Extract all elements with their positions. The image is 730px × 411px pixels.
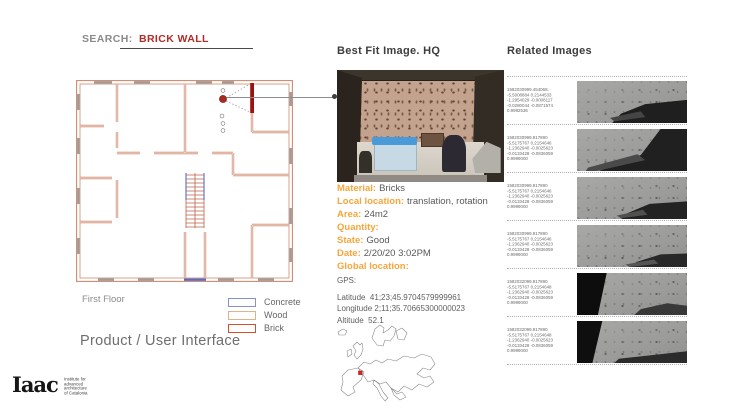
photo-floor: [354, 175, 488, 182]
related-image-thumbnail[interactable]: [577, 273, 687, 315]
detail-label: State:: [337, 235, 363, 246]
selected-brick-wall[interactable]: [250, 83, 254, 113]
europe-map: [334, 324, 438, 406]
material-legend: Concrete Wood Brick: [228, 296, 301, 335]
detail-row-state: State:Good: [337, 234, 488, 247]
detail-list: Material:Bricks Local location:translati…: [337, 182, 488, 260]
photo-dark-object: [359, 151, 372, 173]
pose-data: 1582030999.454068. -5.5008884 0.2144533 …: [507, 87, 575, 113]
detail-value: Good: [366, 235, 389, 246]
logo-wordmark: Iaac: [12, 374, 58, 395]
slide-title: Product / User Interface: [80, 333, 240, 349]
gps-value: 41;23;45.9704579999961: [370, 293, 461, 302]
gps-label: Latitude: [337, 293, 365, 302]
global-location-label: Global location:: [337, 261, 409, 272]
best-fit-image[interactable]: [337, 70, 504, 182]
floor-caption: First Floor: [82, 294, 125, 305]
pose-data: 1582032099.917890 -5.5175767 0.2154648 -…: [507, 327, 575, 353]
related-images-title: Related Images: [507, 45, 592, 57]
search-label: SEARCH:: [82, 33, 133, 45]
detail-value: 24m2: [364, 209, 388, 220]
detail-value: Bricks: [379, 183, 405, 194]
photo-storage-box-lid: [372, 137, 417, 145]
detail-label: Date:: [337, 248, 361, 259]
related-row[interactable]: 1582030999.917890 -5.5175767 0.2154646 -…: [507, 124, 687, 173]
concrete-swatch: [228, 298, 256, 307]
connector-line: [227, 97, 335, 98]
iaac-logo: Iaac Institute for advanced architecture…: [12, 374, 184, 411]
slide-canvas: SEARCH: BRICK WALL: [0, 0, 730, 411]
detail-label: Material:: [337, 183, 376, 194]
related-image-thumbnail[interactable]: [577, 81, 687, 123]
related-image-thumbnail[interactable]: [577, 177, 687, 219]
search-underline: [120, 48, 253, 49]
plan-selected-marker[interactable]: [219, 95, 226, 102]
pose-line: 0.9999000: [507, 300, 575, 305]
pose-data: 1582030999.917890 -5.5175767 0.2154646 -…: [507, 231, 575, 257]
related-image-thumbnail[interactable]: [577, 129, 687, 171]
detail-row-date: Date:2/20/20 3:02PM: [337, 247, 488, 260]
gps-value: 2;11;35.70665300000023: [374, 304, 465, 313]
detail-row-area: Area:24m2: [337, 208, 488, 221]
detail-row-material: Material:Bricks: [337, 182, 488, 195]
plan-sight-lines: [226, 84, 250, 112]
detail-value: 2/20/20 3:02PM: [364, 248, 431, 259]
photo-crate: [421, 133, 445, 147]
wood-swatch: [228, 311, 256, 320]
plan-staircase: [186, 173, 204, 228]
gps-latitude: Latitude 41;23;45.9704579999961: [337, 294, 465, 303]
pose-line: 0.9999000: [507, 348, 575, 353]
related-row[interactable]: 1582030999.454068. -5.5008884 0.2144533 …: [507, 76, 687, 125]
detail-label: Area:: [337, 209, 361, 220]
photo-bag: [442, 135, 465, 172]
detail-row-quantity: Quantity:: [337, 221, 488, 234]
legend-label: Concrete: [264, 297, 301, 307]
legend-item-concrete: Concrete: [228, 296, 301, 308]
search-query-input[interactable]: BRICK WALL: [139, 33, 209, 45]
pose-line: 0.9999000: [507, 204, 575, 209]
gps-block: GPS: Latitude 41;23;45.9704579999961 Lon…: [337, 277, 465, 325]
logo-subtext-line: of Catalonia: [64, 391, 130, 396]
detail-label: Quantity:: [337, 222, 379, 233]
related-image-thumbnail[interactable]: [577, 225, 687, 267]
related-list-end-separator: [507, 364, 687, 365]
brick-swatch: [228, 324, 256, 333]
pose-data: 1582030999.917890 -5.5175767 0.2154646 -…: [507, 135, 575, 161]
legend-label: Wood: [264, 310, 287, 320]
detail-label: Local location:: [337, 196, 404, 207]
plan-interior-walls: [80, 84, 289, 278]
gps-title: GPS:: [337, 277, 465, 286]
pose-line: 0.9992536: [507, 108, 575, 113]
detail-row-local-location: Local location:translation, rotation: [337, 195, 488, 208]
pose-line: 0.9999000: [507, 252, 575, 257]
best-fit-title: Best Fit Image. HQ: [337, 45, 440, 57]
search-bar: SEARCH: BRICK WALL: [82, 33, 209, 45]
gps-longitude: Longitude 2;11;35.70665300000023: [337, 305, 465, 314]
related-row[interactable]: 1582032099.917890 -5.5175767 0.2154648 -…: [507, 268, 687, 317]
legend-label: Brick: [264, 323, 284, 333]
related-row[interactable]: 1582032099.917890 -5.5175767 0.2154648 -…: [507, 316, 687, 365]
floor-plan: [76, 80, 293, 282]
pose-data: 1582030999.917890 -5.5175767 0.2154646 -…: [507, 183, 575, 209]
map-location-marker[interactable]: [359, 371, 363, 375]
gps-label: Longitude: [337, 304, 372, 313]
detail-value: translation, rotation: [407, 196, 488, 207]
pose-data: 1582032099.917890 -5.5175767 0.2154648 -…: [507, 279, 575, 305]
logo-subtext: Institute for advanced architecture of C…: [64, 377, 130, 396]
pose-line: 0.9999000: [507, 156, 575, 161]
related-row[interactable]: 1582030999.917890 -5.5175767 0.2154646 -…: [507, 172, 687, 221]
related-row[interactable]: 1582030999.917890 -5.5175767 0.2154646 -…: [507, 220, 687, 269]
related-image-thumbnail[interactable]: [577, 321, 687, 363]
legend-item-wood: Wood: [228, 309, 301, 321]
